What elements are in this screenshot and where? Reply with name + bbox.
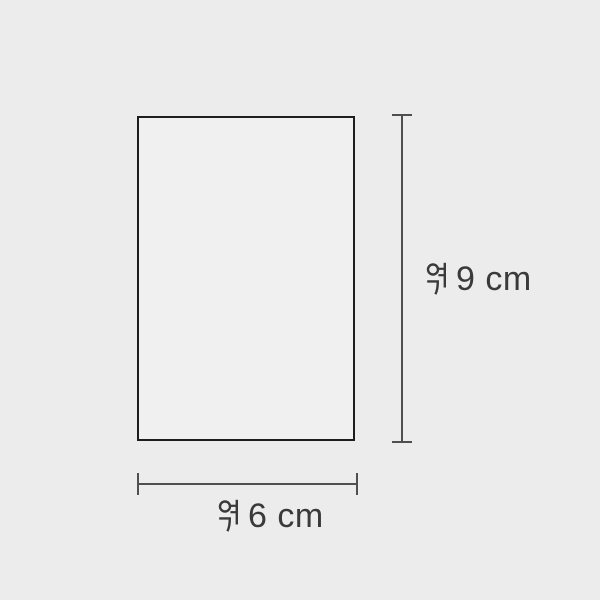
rectangle-shape <box>137 116 355 441</box>
width-dimension-label: 6 cm <box>218 498 324 532</box>
height-value-text: 9 cm <box>456 262 532 296</box>
height-dimension-top-tick <box>392 114 412 116</box>
width-value-text: 6 cm <box>248 499 324 533</box>
height-dimension-line <box>401 115 403 443</box>
height-dimension-label: 9 cm <box>426 261 532 295</box>
width-dimension-right-tick <box>356 473 358 495</box>
width-dimension-line <box>138 483 357 485</box>
width-dimension-left-tick <box>137 473 139 495</box>
product-dimension-diagram: 9 cm 6 cm <box>0 0 600 600</box>
hangul-yak-approx-glyph <box>218 499 241 532</box>
height-dimension-bottom-tick <box>392 441 412 443</box>
hangul-yak-approx-glyph <box>426 262 449 295</box>
